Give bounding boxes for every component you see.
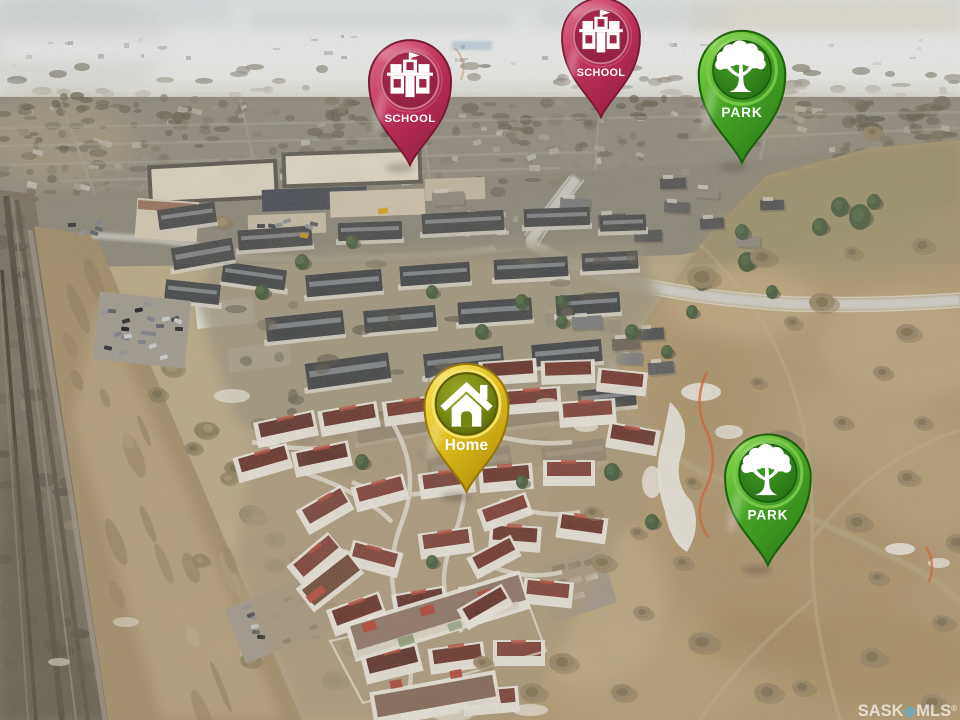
svg-text:PARK: PARK <box>721 105 762 120</box>
svg-text:SCHOOL: SCHOOL <box>384 113 435 125</box>
svg-text:SASK◆MLS®: SASK◆MLS® <box>858 702 957 720</box>
svg-text:SCHOOL: SCHOOL <box>577 67 626 79</box>
svg-text:Home: Home <box>445 437 489 454</box>
svg-text:PARK: PARK <box>747 508 788 523</box>
